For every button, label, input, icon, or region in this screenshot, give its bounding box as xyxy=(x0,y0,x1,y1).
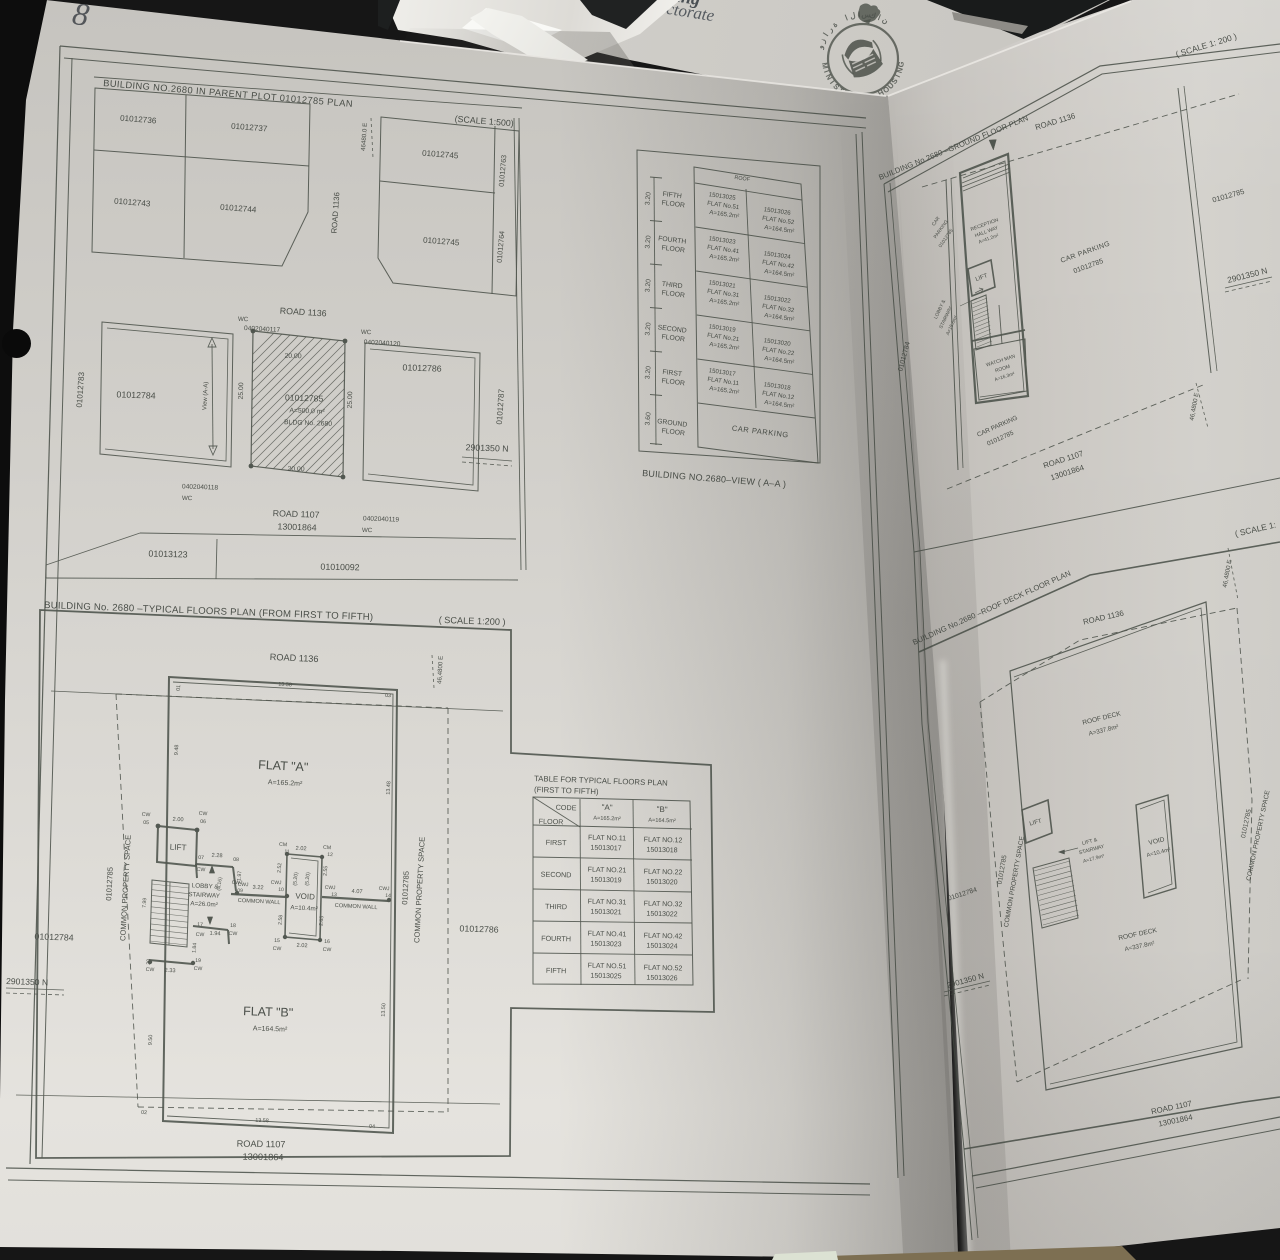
svg-text:( SCALE 1:: ( SCALE 1: xyxy=(1234,519,1277,538)
svg-text:ROAD 1107: ROAD 1107 xyxy=(237,1139,286,1150)
svg-text:CW: CW xyxy=(323,947,332,953)
svg-text:2.28: 2.28 xyxy=(211,853,222,860)
svg-text:3.20: 3.20 xyxy=(644,279,652,293)
svg-text:1.94: 1.94 xyxy=(209,931,220,937)
svg-text:CWJ: CWJ xyxy=(237,882,249,889)
svg-text:0402040117: 0402040117 xyxy=(244,325,281,334)
svg-text:15013022: 15013022 xyxy=(646,911,677,919)
svg-text:A=165.2m²: A=165.2m² xyxy=(593,816,621,823)
svg-text:FIFTH: FIFTH xyxy=(662,191,682,200)
svg-text:01: 01 xyxy=(176,685,183,692)
svg-text:2.00: 2.00 xyxy=(172,817,183,824)
svg-text:CWJ: CWJ xyxy=(378,886,390,893)
svg-text:A=26.0m²: A=26.0m² xyxy=(190,900,218,908)
svg-text:WC: WC xyxy=(238,316,249,324)
svg-text:10: 10 xyxy=(278,887,284,893)
svg-text:01010092: 01010092 xyxy=(320,562,359,573)
svg-text:13001864: 13001864 xyxy=(277,521,317,532)
svg-text:CW: CW xyxy=(142,812,151,818)
svg-text:FIRST: FIRST xyxy=(662,369,682,378)
svg-text:15013024: 15013024 xyxy=(646,943,677,951)
svg-text:A=164.5m²: A=164.5m² xyxy=(253,1025,288,1033)
svg-text:0402040118: 0402040118 xyxy=(182,483,219,491)
svg-text:CW: CW xyxy=(194,966,203,972)
svg-text:COMMON WALL: COMMON WALL xyxy=(238,898,281,906)
svg-text:01012785: 01012785 xyxy=(400,871,411,905)
svg-text:A=164.5m²: A=164.5m² xyxy=(648,818,676,825)
svg-text:01012784: 01012784 xyxy=(116,389,156,400)
svg-text:9.48: 9.48 xyxy=(174,745,181,756)
svg-text:CW: CW xyxy=(146,967,155,973)
svg-text:THIRD: THIRD xyxy=(545,902,567,912)
svg-text:( SCALE 1:200 ): ( SCALE 1:200 ) xyxy=(438,615,505,627)
svg-text:01013123: 01013123 xyxy=(148,548,187,559)
svg-text:15013023: 15013023 xyxy=(590,941,621,949)
svg-text:CWJ: CWJ xyxy=(324,885,336,892)
svg-text:01012737: 01012737 xyxy=(231,122,268,134)
svg-text:01012786: 01012786 xyxy=(402,362,442,373)
svg-text:15: 15 xyxy=(274,938,280,944)
svg-text:13001864: 13001864 xyxy=(243,1152,284,1163)
svg-text:BLDG No. 2680: BLDG No. 2680 xyxy=(284,419,332,428)
svg-text:ROOF: ROOF xyxy=(734,175,751,183)
svg-text:LIFT: LIFT xyxy=(169,843,186,853)
svg-text:ROAD 1107: ROAD 1107 xyxy=(273,508,320,520)
svg-text:FLOOR: FLOOR xyxy=(661,428,685,438)
svg-text:2.33: 2.33 xyxy=(164,968,175,974)
svg-text:2901350 N: 2901350 N xyxy=(1226,265,1268,285)
svg-text:FLOOR: FLOOR xyxy=(539,817,564,827)
svg-text:FLOOR: FLOOR xyxy=(661,245,685,255)
svg-text:CW: CW xyxy=(196,932,205,938)
svg-text:FLAT NO.52: FLAT NO.52 xyxy=(644,964,683,972)
svg-text:VOID: VOID xyxy=(1148,836,1166,847)
svg-text:3.20: 3.20 xyxy=(644,192,652,206)
svg-text:THIRD: THIRD xyxy=(661,281,683,290)
svg-text:01012785: 01012785 xyxy=(1240,808,1253,838)
svg-text:ROAD 1136: ROAD 1136 xyxy=(1034,111,1076,132)
svg-text:16: 16 xyxy=(324,939,330,945)
svg-text:15013019: 15013019 xyxy=(590,877,621,885)
svg-text:CODE: CODE xyxy=(556,803,577,813)
svg-text:3.20: 3.20 xyxy=(644,366,652,380)
svg-text:COMMON PROPERTY SPACE: COMMON PROPERTY SPACE xyxy=(412,837,427,944)
svg-text:05: 05 xyxy=(143,820,149,826)
svg-text:1.84: 1.84 xyxy=(192,943,199,954)
svg-text:FLAT NO.12: FLAT NO.12 xyxy=(644,836,683,844)
svg-text:01012787: 01012787 xyxy=(495,388,506,425)
svg-text:13.58: 13.58 xyxy=(255,1118,269,1124)
svg-text:46,4800 E: 46,4800 E xyxy=(436,656,444,685)
svg-text:CAR PARKING: CAR PARKING xyxy=(1060,240,1111,264)
svg-text:ROAD 1136: ROAD 1136 xyxy=(270,652,319,664)
svg-text:FIFTH: FIFTH xyxy=(546,966,567,976)
svg-text:COMMON PROPERTY SPACE: COMMON PROPERTY SPACE xyxy=(118,835,133,942)
svg-text:2.55: 2.55 xyxy=(323,866,330,877)
svg-text:FLAT "A": FLAT "A" xyxy=(258,758,309,775)
svg-text:FLAT NO.51: FLAT NO.51 xyxy=(588,962,627,970)
svg-text:2.52: 2.52 xyxy=(277,863,284,874)
svg-text:15013021: 15013021 xyxy=(590,909,621,917)
svg-text:CW: CW xyxy=(229,931,238,937)
svg-text:46,4800 E: 46,4800 E xyxy=(1222,559,1234,588)
svg-text:VOID: VOID xyxy=(295,891,315,901)
svg-text:13.50: 13.50 xyxy=(381,1003,388,1017)
svg-text:01012785: 01012785 xyxy=(1073,258,1105,275)
svg-text:01012783: 01012783 xyxy=(75,371,86,408)
svg-text:01012764: 01012764 xyxy=(495,230,507,263)
svg-text:(5.20): (5.20) xyxy=(304,872,311,886)
svg-text:COMMON PROPERTY SPACE: COMMON PROPERTY SPACE xyxy=(1003,835,1026,928)
svg-text:CM: CM xyxy=(323,845,331,851)
svg-text:"A": "A" xyxy=(601,803,612,812)
svg-text:2.58: 2.58 xyxy=(278,915,285,926)
svg-text:FLAT NO.42: FLAT NO.42 xyxy=(644,932,683,940)
svg-text:2901350 N: 2901350 N xyxy=(6,976,48,987)
svg-text:13.58: 13.58 xyxy=(278,682,292,689)
svg-text:3.20: 3.20 xyxy=(644,235,652,249)
svg-text:13: 13 xyxy=(331,892,337,898)
svg-text:01012736: 01012736 xyxy=(120,114,157,126)
svg-text:15013025: 15013025 xyxy=(590,973,621,981)
svg-text:ROAD 1136: ROAD 1136 xyxy=(280,306,327,319)
svg-text:COMMON WALL: COMMON WALL xyxy=(335,903,378,911)
svg-text:FLOOR: FLOOR xyxy=(661,378,685,388)
svg-text:03: 03 xyxy=(385,693,391,699)
svg-text:01012745: 01012745 xyxy=(423,236,460,248)
svg-text:(FIRST TO FIFTH): (FIRST TO FIFTH) xyxy=(534,785,599,796)
svg-text:CW: CW xyxy=(199,811,208,817)
svg-text:01012786: 01012786 xyxy=(459,923,499,934)
svg-text:46480.0 E: 46480.0 E xyxy=(360,123,369,152)
svg-text:BUILDING No.2680 –GROUND: BUILDING No.2680 –GROUND FLOOR PLAN xyxy=(877,113,1029,181)
svg-text:19: 19 xyxy=(195,958,201,964)
svg-text:FLAT NO.31: FLAT NO.31 xyxy=(588,898,627,906)
svg-text:15013020: 15013020 xyxy=(646,879,677,887)
svg-text:CWJ: CWJ xyxy=(270,880,282,887)
svg-text:CW: CW xyxy=(197,867,206,873)
svg-text:12: 12 xyxy=(327,852,333,858)
svg-text:9.50: 9.50 xyxy=(148,1035,155,1046)
svg-text:STAIRWAY: STAIRWAY xyxy=(188,891,221,900)
svg-text:01012784: 01012784 xyxy=(34,931,74,942)
svg-text:2.02: 2.02 xyxy=(295,846,306,853)
svg-text:06: 06 xyxy=(200,819,206,825)
svg-text:20.00: 20.00 xyxy=(287,466,304,474)
svg-text:A=10.4m²: A=10.4m² xyxy=(290,904,318,912)
svg-text:25.00: 25.00 xyxy=(238,382,246,399)
svg-text:LIFT: LIFT xyxy=(1029,818,1043,827)
svg-text:CAR: CAR xyxy=(931,215,942,227)
svg-text:A=500.0 m²: A=500.0 m² xyxy=(289,407,325,415)
svg-text:FLAT NO.11: FLAT NO.11 xyxy=(588,835,626,843)
svg-text:WC: WC xyxy=(362,527,373,534)
svg-text:FLOOR: FLOOR xyxy=(661,334,685,344)
svg-text:25.00: 25.00 xyxy=(347,391,355,408)
svg-text:ROAD 1136: ROAD 1136 xyxy=(1082,609,1124,627)
svg-text:WC: WC xyxy=(361,329,372,337)
svg-text:01012744: 01012744 xyxy=(220,203,257,215)
svg-text:13.48: 13.48 xyxy=(386,781,393,795)
svg-text:18: 18 xyxy=(230,923,236,929)
svg-text:01012784: 01012784 xyxy=(947,887,978,903)
svg-text:(5.20): (5.20) xyxy=(292,872,299,886)
svg-text:FLAT "B": FLAT "B" xyxy=(243,1004,294,1020)
svg-text:01012743: 01012743 xyxy=(114,197,151,209)
svg-text:BUILDING No.2680 –ROOF: BUILDING No.2680 –ROOF DECK FLOOR PLAN xyxy=(911,569,1072,647)
svg-text:CW: CW xyxy=(273,946,282,952)
svg-text:01012785: 01012785 xyxy=(1211,187,1245,205)
svg-text:View (A-A): View (A-A) xyxy=(202,382,209,411)
svg-text:01012785: 01012785 xyxy=(997,854,1009,884)
svg-text:15013018: 15013018 xyxy=(646,847,677,855)
svg-text:7.99: 7.99 xyxy=(142,898,149,909)
svg-text:FLAT NO.21: FLAT NO.21 xyxy=(588,866,627,874)
svg-text:"B": "B" xyxy=(656,805,667,814)
svg-text:01012785: 01012785 xyxy=(285,392,324,403)
svg-text:08: 08 xyxy=(233,857,239,863)
svg-text:A=337.8m²: A=337.8m² xyxy=(1088,723,1119,737)
svg-text:LIFT: LIFT xyxy=(975,273,989,283)
svg-text:FLAT NO.41: FLAT NO.41 xyxy=(588,930,627,938)
svg-text:01012784: 01012784 xyxy=(897,341,912,372)
svg-text:2.02: 2.02 xyxy=(296,943,307,949)
svg-text:01012785: 01012785 xyxy=(104,867,115,901)
svg-text:A=165.2m²: A=165.2m² xyxy=(268,779,303,788)
svg-text:3.60: 3.60 xyxy=(644,412,652,426)
svg-text:BUILDING NO.2680–VIEW ( A–A ): BUILDING NO.2680–VIEW ( A–A ) xyxy=(642,468,787,489)
svg-text:A=10.4m²: A=10.4m² xyxy=(1146,847,1171,859)
svg-text:SECOND: SECOND xyxy=(541,870,572,880)
svg-text:01012763: 01012763 xyxy=(497,154,509,187)
svg-text:FOURTH: FOURTH xyxy=(541,934,571,944)
svg-text:02: 02 xyxy=(141,1110,147,1116)
svg-text:CM: CM xyxy=(279,842,287,848)
svg-text:15013026: 15013026 xyxy=(646,975,677,983)
svg-text:4.07: 4.07 xyxy=(351,889,362,896)
svg-text:01012745: 01012745 xyxy=(422,149,459,161)
svg-text:20.00: 20.00 xyxy=(284,353,301,361)
svg-text:LOBBY &: LOBBY & xyxy=(191,882,219,890)
svg-text:WC: WC xyxy=(182,495,193,502)
svg-text:COMMON PROPERTY SPACE: COMMON PROPERTY SPACE xyxy=(1246,789,1272,881)
svg-text:FLOOR: FLOOR xyxy=(661,200,685,210)
svg-text:FIRST: FIRST xyxy=(546,838,568,848)
svg-text:3.22: 3.22 xyxy=(252,885,263,892)
svg-text:2.65: 2.65 xyxy=(319,916,326,927)
svg-text:(SCALE 1:500): (SCALE 1:500) xyxy=(454,114,514,129)
svg-text:15013017: 15013017 xyxy=(590,845,621,853)
svg-text:( SCALE 1: 200 ): ( SCALE 1: 200 ) xyxy=(1174,31,1238,59)
svg-text:FLAT NO.32: FLAT NO.32 xyxy=(644,900,683,908)
svg-text:A=337.8m²: A=337.8m² xyxy=(1124,940,1155,953)
svg-text:0402040119: 0402040119 xyxy=(363,515,400,523)
svg-text:FLOOR: FLOOR xyxy=(661,290,685,300)
svg-text:3.20: 3.20 xyxy=(644,322,652,336)
svg-text:07: 07 xyxy=(198,855,204,861)
svg-text:ROAD 1136: ROAD 1136 xyxy=(330,192,342,234)
svg-text:04: 04 xyxy=(369,1124,375,1130)
svg-text:46,4800 E: 46,4800 E xyxy=(1189,392,1201,421)
svg-text:A=17.9m²: A=17.9m² xyxy=(1082,853,1105,865)
svg-text:2901350 N: 2901350 N xyxy=(465,442,508,453)
svg-text:CAR PARKING: CAR PARKING xyxy=(731,424,789,440)
svg-text:FLAT NO.22: FLAT NO.22 xyxy=(644,868,683,876)
